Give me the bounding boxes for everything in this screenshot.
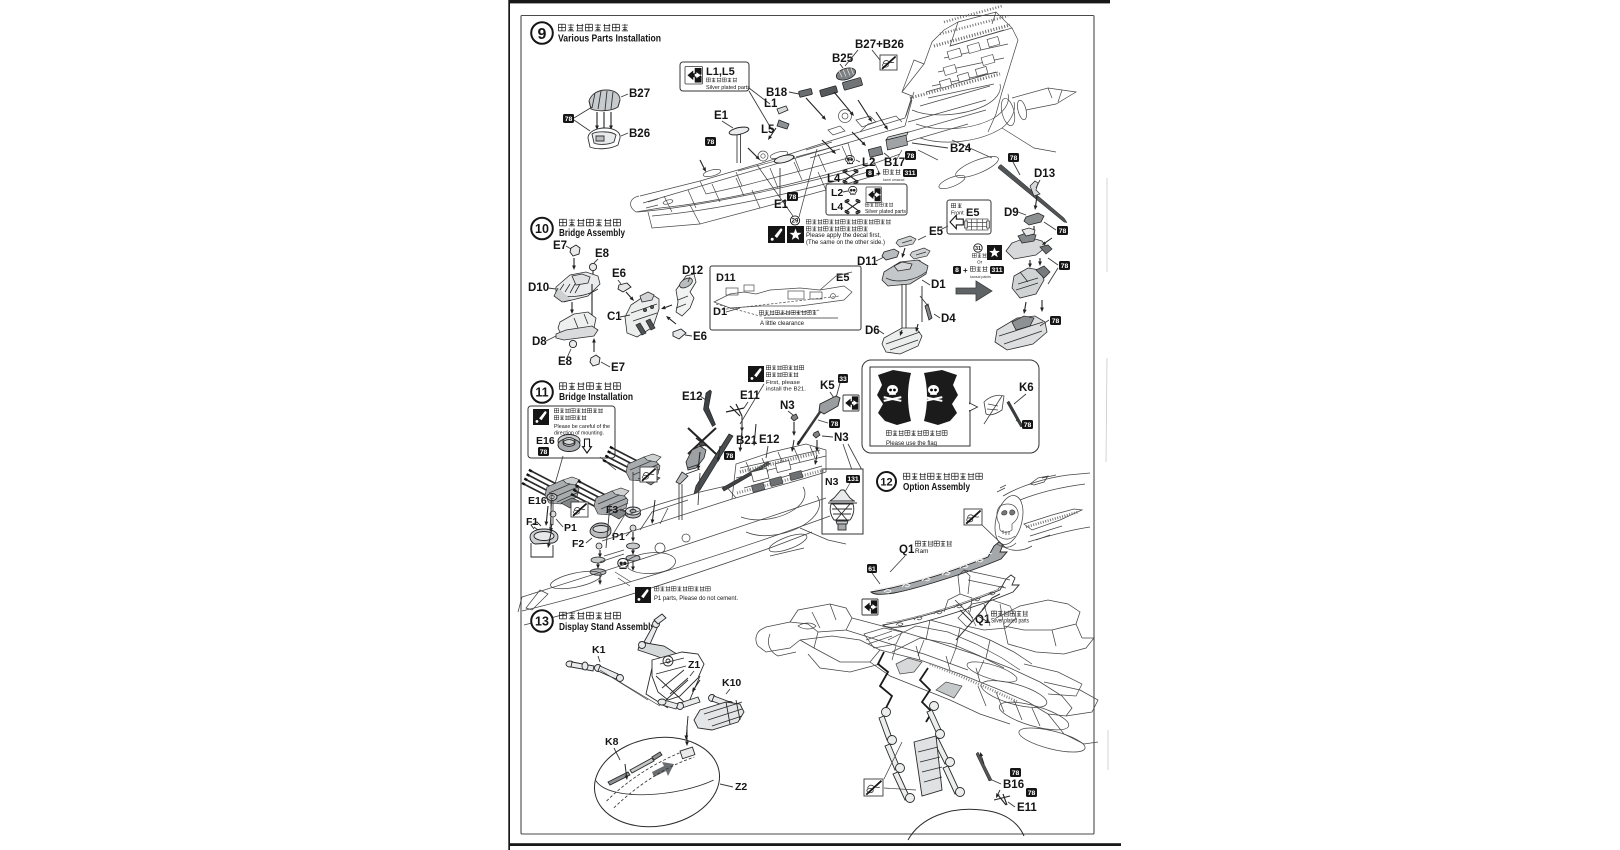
svg-text:B27+B26: B27+B26 bbox=[855, 39, 904, 51]
svg-text:K10: K10 bbox=[722, 677, 741, 689]
svg-text:N3: N3 bbox=[780, 400, 795, 412]
svg-text:+: + bbox=[963, 266, 968, 275]
svg-text:D12: D12 bbox=[682, 265, 703, 277]
svg-text:78: 78 bbox=[1061, 263, 1069, 270]
svg-text:Bridge Installation: Bridge Installation bbox=[559, 391, 633, 403]
svg-text:L2: L2 bbox=[862, 157, 875, 169]
svg-text:Silver plated parts: Silver plated parts bbox=[706, 85, 750, 91]
svg-text:E5: E5 bbox=[836, 272, 849, 284]
svg-text:Option Assembly: Option Assembly bbox=[903, 481, 970, 493]
svg-text:K6: K6 bbox=[1019, 382, 1034, 394]
svg-text:First, please: First, please bbox=[766, 380, 800, 386]
svg-text:78: 78 bbox=[1059, 228, 1067, 235]
svg-text:Z1: Z1 bbox=[688, 659, 700, 671]
svg-text:K1: K1 bbox=[592, 644, 606, 656]
svg-text:B27: B27 bbox=[629, 88, 650, 100]
svg-text:L2: L2 bbox=[831, 187, 843, 199]
svg-text:78: 78 bbox=[1010, 155, 1018, 162]
svg-text:13: 13 bbox=[535, 615, 549, 629]
svg-text:78: 78 bbox=[540, 449, 548, 456]
svg-text:Ram: Ram bbox=[915, 548, 929, 555]
svg-text:D11: D11 bbox=[716, 272, 736, 284]
svg-text:kanri umaxcd: kanri umaxcd bbox=[883, 178, 904, 182]
svg-text:E5: E5 bbox=[929, 226, 944, 238]
svg-text:8: 8 bbox=[955, 267, 959, 274]
svg-text:D10: D10 bbox=[528, 282, 549, 294]
svg-text:install the B21.: install the B21. bbox=[766, 387, 806, 393]
svg-text:78: 78 bbox=[907, 153, 915, 160]
svg-text:F2: F2 bbox=[572, 538, 584, 550]
svg-text:78: 78 bbox=[707, 139, 715, 146]
svg-text:K8: K8 bbox=[605, 736, 619, 748]
svg-text:E16: E16 bbox=[528, 495, 547, 507]
svg-text:Please use the flag: Please use the flag bbox=[886, 440, 937, 447]
svg-text:L1,L5: L1,L5 bbox=[706, 66, 735, 78]
svg-text:12: 12 bbox=[880, 476, 892, 488]
svg-text:8: 8 bbox=[868, 170, 872, 177]
svg-text:D9: D9 bbox=[1004, 207, 1019, 219]
svg-text:Various Parts Installation: Various Parts Installation bbox=[558, 33, 661, 45]
svg-text:11: 11 bbox=[535, 386, 548, 400]
svg-text:Please be careful of the: Please be careful of the bbox=[554, 424, 610, 430]
svg-text:311: 311 bbox=[905, 170, 916, 177]
svg-text:L5: L5 bbox=[761, 124, 775, 136]
svg-text:P1 parts, Please do not cement: P1 parts, Please do not cement. bbox=[654, 595, 738, 602]
svg-text:E1: E1 bbox=[774, 199, 789, 211]
svg-text:D11: D11 bbox=[857, 256, 878, 268]
svg-text:78: 78 bbox=[1028, 790, 1036, 797]
svg-text:29: 29 bbox=[792, 219, 799, 225]
svg-text:A little clearance: A little clearance bbox=[760, 320, 805, 327]
svg-text:Q1: Q1 bbox=[899, 544, 915, 556]
svg-text:Please apply the decal first,: Please apply the decal first, bbox=[806, 232, 881, 239]
svg-text:Z2: Z2 bbox=[735, 781, 747, 793]
svg-text:direction of mounting.: direction of mounting. bbox=[554, 431, 604, 437]
svg-text:K5: K5 bbox=[820, 380, 835, 392]
svg-text:E7: E7 bbox=[553, 240, 567, 252]
svg-text:10: 10 bbox=[535, 222, 549, 236]
svg-text:E8: E8 bbox=[558, 356, 573, 368]
svg-text:Or: Or bbox=[977, 260, 983, 265]
svg-text:Display Stand Assembly: Display Stand Assembly bbox=[559, 621, 655, 633]
svg-text:E6: E6 bbox=[693, 331, 707, 343]
svg-text:D1: D1 bbox=[931, 279, 946, 291]
svg-text:78: 78 bbox=[726, 453, 734, 460]
svg-text:B17: B17 bbox=[884, 157, 905, 169]
svg-text:E6: E6 bbox=[612, 268, 626, 280]
svg-text:B16: B16 bbox=[1003, 779, 1024, 791]
svg-text:L4: L4 bbox=[827, 173, 841, 185]
svg-text:D1: D1 bbox=[713, 306, 727, 318]
svg-text:E11: E11 bbox=[740, 390, 760, 402]
svg-text:L1: L1 bbox=[764, 98, 778, 110]
svg-text:E8: E8 bbox=[595, 248, 610, 260]
svg-text:Silver plated parts: Silver plated parts bbox=[865, 209, 906, 215]
svg-text:(The same on the other side.): (The same on the other side.) bbox=[806, 239, 885, 246]
svg-text:78: 78 bbox=[831, 421, 839, 428]
svg-text:D4: D4 bbox=[941, 313, 956, 325]
svg-text:L4: L4 bbox=[831, 201, 843, 213]
svg-text:+: + bbox=[876, 169, 881, 178]
svg-text:31: 31 bbox=[975, 246, 981, 252]
svg-text:E7: E7 bbox=[611, 362, 625, 374]
svg-text:311: 311 bbox=[992, 267, 1003, 274]
svg-text:E16: E16 bbox=[536, 435, 555, 447]
svg-text:E12: E12 bbox=[759, 434, 779, 446]
svg-text:9: 9 bbox=[538, 26, 547, 43]
svg-text:N3: N3 bbox=[825, 476, 839, 488]
svg-text:F3: F3 bbox=[606, 504, 618, 516]
svg-text:D6: D6 bbox=[865, 325, 880, 337]
svg-text:78: 78 bbox=[1024, 422, 1032, 429]
svg-text:78: 78 bbox=[565, 116, 573, 123]
svg-text:kansai paints: kansai paints bbox=[970, 275, 991, 279]
svg-text:78: 78 bbox=[789, 194, 797, 201]
svg-text:131: 131 bbox=[847, 476, 859, 483]
svg-text:D13: D13 bbox=[1034, 168, 1055, 180]
svg-text:E11: E11 bbox=[1017, 802, 1037, 814]
svg-text:78: 78 bbox=[1012, 770, 1020, 777]
svg-text:P1: P1 bbox=[564, 522, 577, 534]
svg-text:Front: Front bbox=[951, 211, 964, 217]
svg-text:B26: B26 bbox=[629, 128, 650, 140]
svg-text:33: 33 bbox=[839, 376, 847, 383]
svg-text:61: 61 bbox=[868, 566, 876, 573]
svg-text:Bridge Assembly: Bridge Assembly bbox=[559, 227, 625, 239]
svg-text:E12: E12 bbox=[682, 391, 702, 403]
svg-text:D8: D8 bbox=[532, 336, 547, 348]
svg-text:E1: E1 bbox=[714, 110, 729, 122]
svg-text:N3: N3 bbox=[834, 432, 849, 444]
svg-text:E5: E5 bbox=[966, 207, 979, 219]
svg-text:78: 78 bbox=[1052, 318, 1060, 325]
svg-text:B24: B24 bbox=[950, 143, 972, 155]
